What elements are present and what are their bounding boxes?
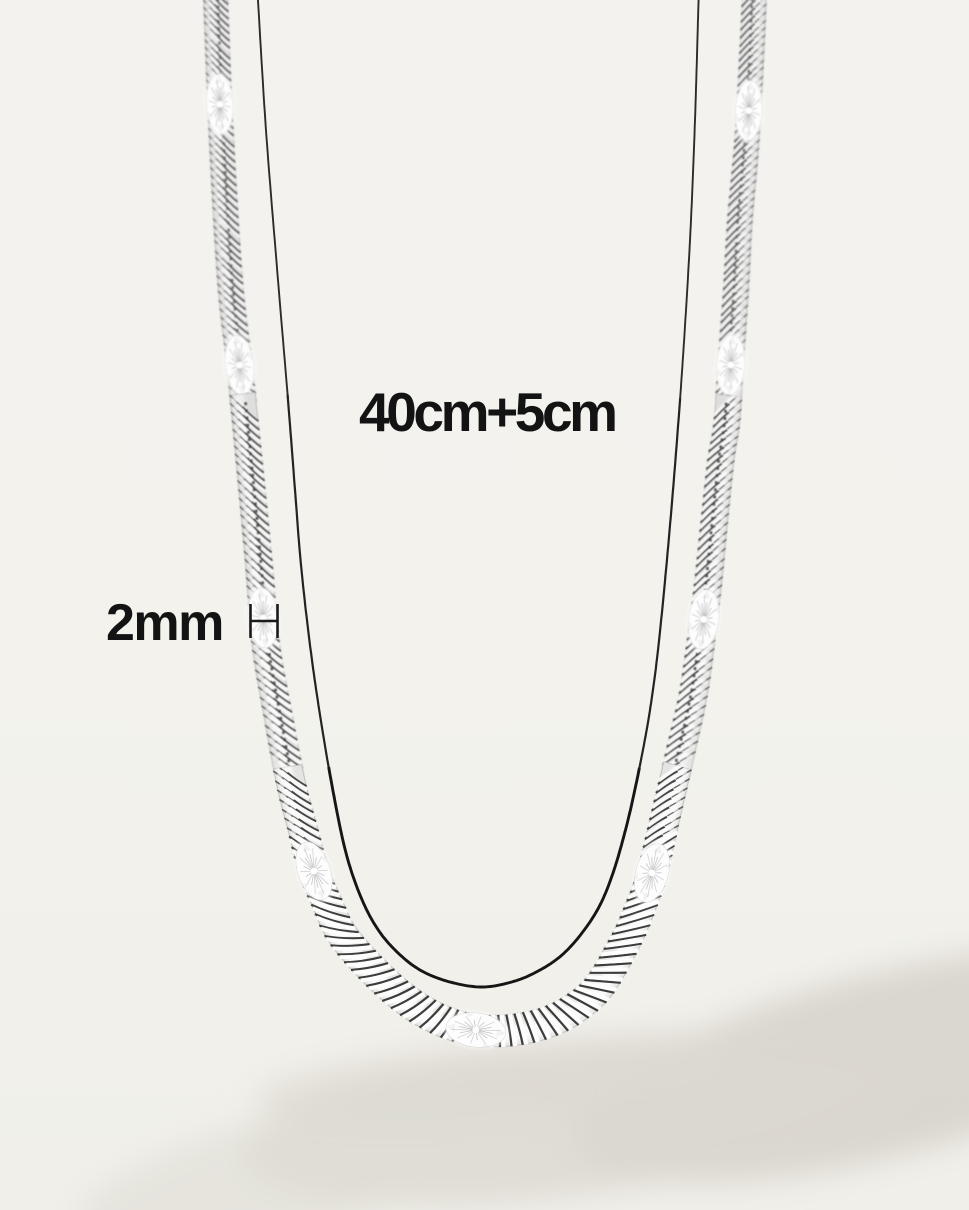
svg-text:40cm+5cm: 40cm+5cm bbox=[359, 381, 615, 443]
svg-text:2mm: 2mm bbox=[106, 594, 223, 652]
